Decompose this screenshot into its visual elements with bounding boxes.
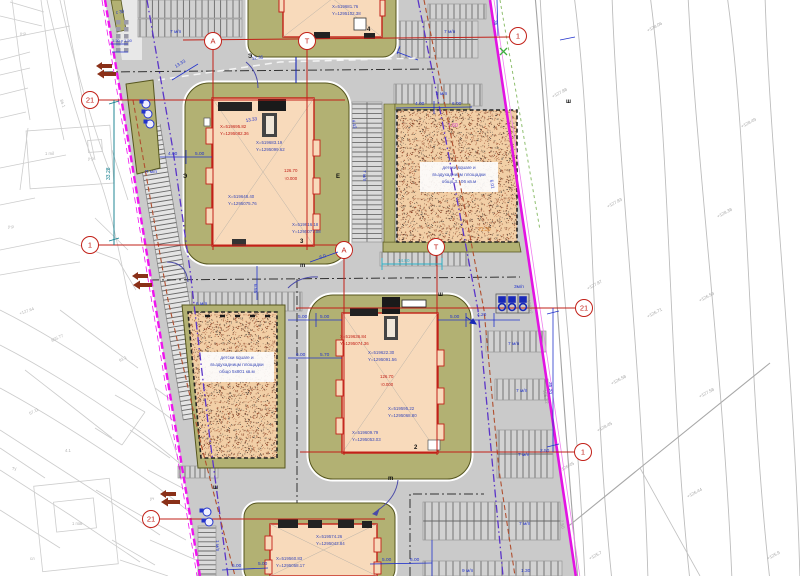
svg-text:X=519560.83: X=519560.83 [276,556,303,561]
svg-text:6.00: 6.00 [452,101,462,107]
svg-text:5.00: 5.00 [232,563,242,569]
svg-text:X=519595.22: X=519595.22 [388,406,415,411]
svg-text:7 м/п: 7 м/п [444,29,456,35]
svg-text:уч: уч [150,496,154,501]
svg-text:ш: ш [213,485,218,491]
svg-text:4.20: 4.20 [477,312,487,318]
svg-text:5.00: 5.00 [195,151,205,157]
svg-text:↑0.000: ↑0.000 [284,176,298,181]
svg-text:Y=1295068.80: Y=1295068.80 [388,413,417,418]
svg-text:Э: Э [248,54,253,60]
svg-text:1.30: 1.30 [521,568,531,574]
svg-text:X=519681.76: X=519681.76 [332,4,359,9]
svg-text:Y=1295102.38: Y=1295102.38 [332,11,361,16]
svg-text:Y=1295091.56: Y=1295091.56 [368,357,397,362]
svg-text:1.30 у 1.50: 1.30 у 1.50 [112,38,133,43]
svg-text:↑0.000: ↑0.000 [380,382,394,387]
svg-text:1 mil: 1 mil [45,151,54,156]
svg-text:X=519648.40: X=519648.40 [228,194,255,199]
svg-text:5.00: 5.00 [450,314,460,320]
svg-text:у-р: у-р [8,224,14,229]
svg-text:6.55: 6.55 [252,284,258,294]
svg-text:Э: Э [183,174,188,180]
svg-text:ш: ш [566,99,571,105]
svg-text:126.70: 126.70 [284,168,298,173]
svg-text:X=519609.79: X=519609.79 [352,430,379,435]
svg-text:E: E [336,174,340,180]
svg-text:2.50: 2.50 [540,448,550,454]
svg-text:X=519695.82: X=519695.82 [220,124,247,129]
svg-text:7 м/п: 7 м/п [516,388,528,394]
svg-text:m: m [300,263,305,269]
svg-text:4.00: 4.00 [415,101,425,107]
svg-text:1: 1 [516,32,520,41]
svg-text:9 м/п: 9 м/п [462,568,474,574]
svg-text:П м/п: П м/п [145,169,157,175]
svg-text:4.1: 4.1 [65,448,71,453]
svg-text:сл: сл [30,556,35,561]
svg-text:6.00: 6.00 [410,557,420,563]
svg-text:въздухадницм площадки: въздухадницм площадки [210,362,264,367]
svg-text:6 м/п: 6 м/п [196,301,208,307]
svg-text:35: 35 [492,20,498,26]
svg-text:21: 21 [86,96,94,105]
svg-text:4.00: 4.00 [168,151,178,157]
svg-text:33.28: 33.28 [106,167,112,180]
svg-text:126.70: 126.70 [380,374,394,379]
svg-text:5.00: 5.00 [298,314,308,320]
svg-text:A: A [210,37,215,46]
svg-text:21: 21 [580,304,588,313]
svg-text:7 м/п: 7 м/п [170,29,182,35]
svg-text:ш: ш [438,292,443,298]
svg-text:1 пов: 1 пов [72,521,83,526]
svg-text:X=519616.18: X=519616.18 [292,222,319,227]
svg-text:общо 3.106 кв.м: общо 3.106 кв.м [442,179,476,184]
svg-text:14.80: 14.80 [398,258,410,263]
svg-text:Y=1295075.76: Y=1295075.76 [228,201,257,206]
svg-text:5.00: 5.00 [258,561,268,567]
svg-text:21: 21 [147,515,155,524]
svg-text:детски square и: детски square и [442,165,476,170]
svg-text:1: 1 [581,448,585,457]
svg-text:7 м/п: 7 м/п [519,521,531,527]
svg-text:X=519683.19: X=519683.19 [256,140,283,145]
svg-text:71.30: 71.30 [478,227,491,233]
svg-text:2 м/п: 2 м/п [436,91,448,97]
svg-text:5.00: 5.00 [382,557,392,563]
svg-text:5.70: 5.70 [320,352,330,358]
svg-text:Y=1295082.36: Y=1295082.36 [220,131,249,136]
svg-text:Y=1295053.03: Y=1295053.03 [352,437,381,442]
svg-text:3м/п: 3м/п [514,284,524,290]
svg-text:X=519622.30: X=519622.30 [368,350,395,355]
svg-text:1: 1 [88,241,92,250]
svg-text:T: T [434,243,439,252]
svg-text:5.00: 5.00 [320,314,330,320]
svg-text:общо 5x801 кв.м: общо 5x801 кв.м [219,369,254,374]
svg-text:детски square и: детски square и [220,355,254,360]
svg-text:X=519574.26: X=519574.26 [316,534,343,539]
svg-text:у-р: у-р [88,156,94,161]
svg-text:Y=1295043.84: Y=1295043.84 [316,541,345,546]
svg-text:7 м/п: 7 м/п [361,170,367,182]
svg-text:T: T [305,37,310,46]
svg-text:m: m [388,476,393,482]
svg-text:7 м/п: 7 м/п [518,452,530,458]
svg-text:A: A [341,246,346,255]
svg-text:Y=1295099.62: Y=1295099.62 [256,147,285,152]
svg-text:7 м/п: 7 м/п [508,341,520,347]
svg-text:6.00: 6.00 [296,352,306,358]
svg-text:1 м/п: 1 м/п [214,540,220,552]
svg-text:у-р: у-р [20,31,26,36]
svg-text:Y=1295058.17: Y=1295058.17 [276,563,305,568]
